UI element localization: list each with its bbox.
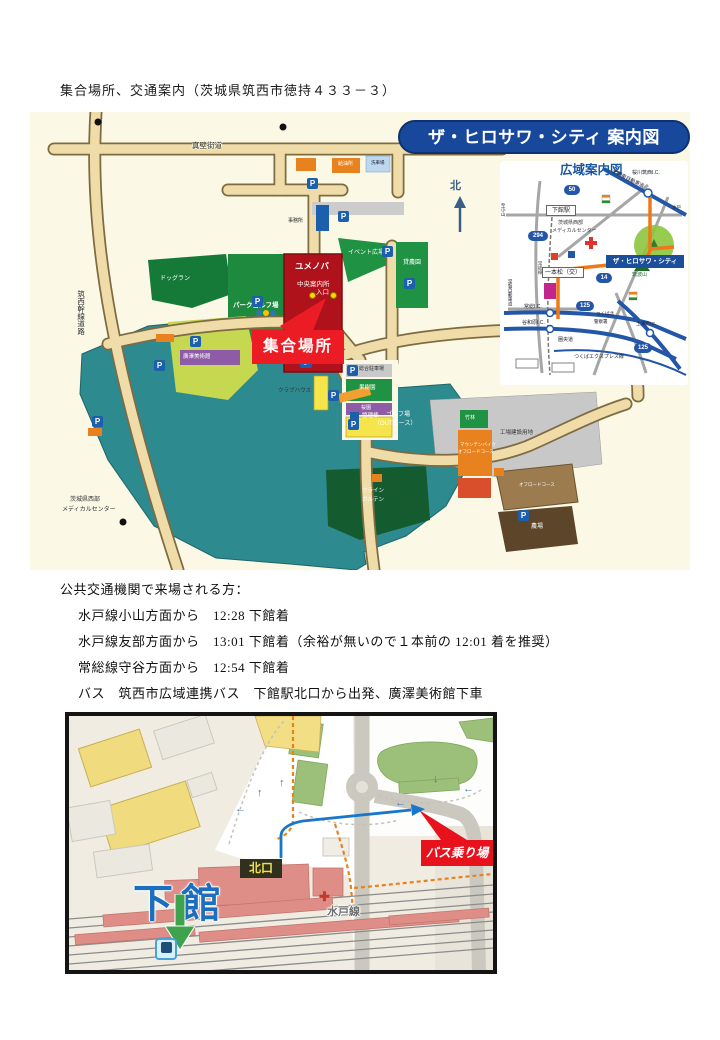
klein-label1: クライン xyxy=(362,488,384,494)
inset-expressways xyxy=(504,169,686,369)
map-title-badge: ザ・ヒロサワ・シティ 案内図 xyxy=(398,120,690,154)
parking-icon: P xyxy=(518,510,529,521)
mtb-label2: オフロードコース xyxy=(458,449,494,454)
admin-building-label: 管理棟 xyxy=(362,413,379,419)
dog-run-label: ドッグラン xyxy=(160,276,190,283)
parking-icon: P xyxy=(154,360,165,371)
museum-label: 廣澤美術館 xyxy=(183,354,211,360)
joso-line-label: 常総線 xyxy=(538,261,543,275)
main-parking-label: 総合駐車場 xyxy=(359,367,384,373)
info-center-dot xyxy=(309,292,316,299)
road-makabe-label: 真壁街道 xyxy=(192,142,222,151)
parking-icon: P xyxy=(328,390,339,401)
mito-line-label: 水戸線 xyxy=(327,906,360,919)
rental-farm-block xyxy=(396,242,428,308)
oyama-label: 至小山 xyxy=(501,203,506,217)
marker-dot xyxy=(256,310,262,316)
factory-lot-label: 工場建設用地 xyxy=(500,430,533,436)
hirosawa-city-badge: ザ・ヒロサワ・シティ xyxy=(606,255,684,268)
page-title: 集合場所、交通案内（茨城県筑西市徳持４３３－３） xyxy=(60,80,396,99)
mtb-course-block2 xyxy=(458,478,491,498)
hospital-cross-icon xyxy=(585,237,597,249)
svg-text:↑: ↑ xyxy=(279,777,285,789)
route-shield-50: 50 xyxy=(564,185,580,195)
roundabout-island xyxy=(356,781,368,793)
small-orange-2 xyxy=(88,428,102,436)
gas-label: 給油所 xyxy=(338,162,353,168)
orchard-label: 果樹園 xyxy=(359,385,376,391)
crossing-cross-icon: ✚ xyxy=(319,890,330,905)
entrance-label: 入口 xyxy=(316,289,329,296)
public-transport-info: 公共交通機関で来場される方： 水戸線小山方面から 12:28 下館着 水戸線友部… xyxy=(60,577,700,733)
north-label: 北 xyxy=(450,180,461,193)
wide-area-inset-map: 広域案内図 ザ・ヒロサワ・シティ 下館駅 一本松（交） 桜川筑西I.C. 北関東… xyxy=(500,161,688,385)
info-center-label: 中央案内所 xyxy=(297,281,330,288)
medical-label1: 茨城県西部 xyxy=(70,497,100,504)
parking-icon: P xyxy=(348,419,359,430)
kenodo-label: 圏央道 xyxy=(558,338,573,344)
bamboo-label: 竹林 xyxy=(465,416,475,422)
klein-label2: ガルテン xyxy=(362,497,384,503)
parking-icon: P xyxy=(92,416,103,427)
farm-label: 農場 xyxy=(531,524,543,531)
station-boxes xyxy=(516,359,574,372)
parking-icon: P xyxy=(382,246,393,257)
poi-dot-1 xyxy=(95,119,102,126)
inset-roads xyxy=(506,181,682,375)
tsukubasan-label: 筑波山 xyxy=(632,273,647,279)
north-arrow-icon xyxy=(454,196,466,232)
parking-icon: P xyxy=(347,365,358,376)
mito-label: 水戸 xyxy=(672,205,681,210)
small-orange-4 xyxy=(494,468,504,476)
inset-medical-label1: 茨城県西部 xyxy=(558,221,583,227)
yumenoba-label: ユメノバ xyxy=(295,262,329,272)
transport-line: 公共交通機関で来場される方： xyxy=(60,577,700,603)
yellow-lot xyxy=(255,716,321,752)
transport-line: 水戸線小山方面から 12:28 下館着 xyxy=(60,603,700,629)
police-label2: 警察署 xyxy=(594,319,608,324)
hirosawa-city-site-map: ザ・ヒロサワ・シティ 案内図 真壁街道 筑西幹線道路 北 ユメノバ 中央案内所 … xyxy=(30,112,690,570)
parking-icon: P xyxy=(307,178,318,189)
bus-stop-callout: バス乗り場 xyxy=(421,840,493,866)
medical-label2: メディカルセンター xyxy=(62,507,116,514)
rental-farm-label: 貸農園 xyxy=(403,260,421,267)
sakuragawa-ic-label: 桜川筑西I.C. xyxy=(632,171,660,177)
carwash-label: 洗車場 xyxy=(371,160,385,165)
poi-dot-2 xyxy=(280,124,287,131)
marker-dot xyxy=(263,310,269,316)
small-orange-3 xyxy=(372,474,382,482)
golf-out-label2: （OUTコース） xyxy=(374,421,416,428)
parking-icon: P xyxy=(190,336,201,347)
offroad-label: オフロードコース xyxy=(519,482,555,487)
parking-icon: P xyxy=(252,296,263,307)
parking-icon: P xyxy=(404,278,415,289)
station-icon xyxy=(155,938,177,960)
office-tower xyxy=(316,205,329,231)
event-plaza-label: イベント広場 xyxy=(348,250,384,257)
sakura-label: 桜園 xyxy=(361,406,371,412)
svg-text:↑: ↑ xyxy=(257,787,263,799)
transport-line: バス 筑西市広域連携バス 下館駅北口から出発、廣澤美術館下車 xyxy=(60,681,700,707)
svg-text:←: ← xyxy=(235,803,246,815)
shimodate-station-map: ←↑↑ ←↓← 北口 下館 水戸線 ✚ バス乗り場 xyxy=(65,712,497,974)
joban-label: 常磐自動車道 xyxy=(508,279,513,306)
tsuchiura-ic-label: 土浦北I.C. xyxy=(636,321,657,326)
clubhouse-block xyxy=(314,376,328,410)
document-page: 集合場所、交通案内（茨城県筑西市徳持４３３－３） xyxy=(0,0,720,1040)
medical-center-dot xyxy=(120,519,127,526)
shimodate-station-box: 下館駅 xyxy=(546,205,576,216)
office-label: 事務所 xyxy=(288,219,303,225)
yawara-ic-label: 谷和原I.C. xyxy=(522,321,545,327)
route-shield-125b: 125 xyxy=(634,343,652,353)
transport-line: 常総線守谷方面から 12:54 下館着 xyxy=(60,655,700,681)
clubhouse-label: クラブハウス xyxy=(278,388,311,394)
police-label1: つくば北 xyxy=(596,311,614,316)
route-shield-294: 294 xyxy=(528,231,548,241)
marker-dot xyxy=(270,310,276,316)
mtb-label1: マウンテンバイク xyxy=(460,442,496,447)
small-orange-1 xyxy=(156,334,174,342)
kiosk-building xyxy=(323,838,349,856)
joso-ic-label: 常総I.C. xyxy=(524,305,542,311)
route-shield-125: 125 xyxy=(576,301,594,311)
north-exit-label: 北口 xyxy=(240,859,282,878)
inset-canvas xyxy=(500,161,688,385)
inset-medical-label2: メディカルセンター xyxy=(552,229,597,235)
svg-text:↓: ↓ xyxy=(433,773,439,785)
parking-icon: P xyxy=(338,211,349,222)
shop-block xyxy=(296,158,316,171)
golf-out-label1: ゴルフ場 xyxy=(386,412,410,419)
svg-text:←: ← xyxy=(395,797,406,809)
tx-label: つくばエクスプレス線 xyxy=(574,355,624,361)
entrance-dot xyxy=(330,292,337,299)
transport-line: 水戸線友部方面から 13:01 下館着（余裕が無いので１本前の 12:01 着を… xyxy=(60,629,700,655)
svg-text:←: ← xyxy=(463,783,474,795)
route-shield-14: 14 xyxy=(596,273,612,283)
west-buildings xyxy=(69,716,217,878)
ipponmatsu-box: 一本松（交） xyxy=(542,267,584,278)
road-chikusei-label: 筑西幹線道路 xyxy=(76,290,85,335)
meeting-point-callout: 集合場所 xyxy=(252,330,344,364)
